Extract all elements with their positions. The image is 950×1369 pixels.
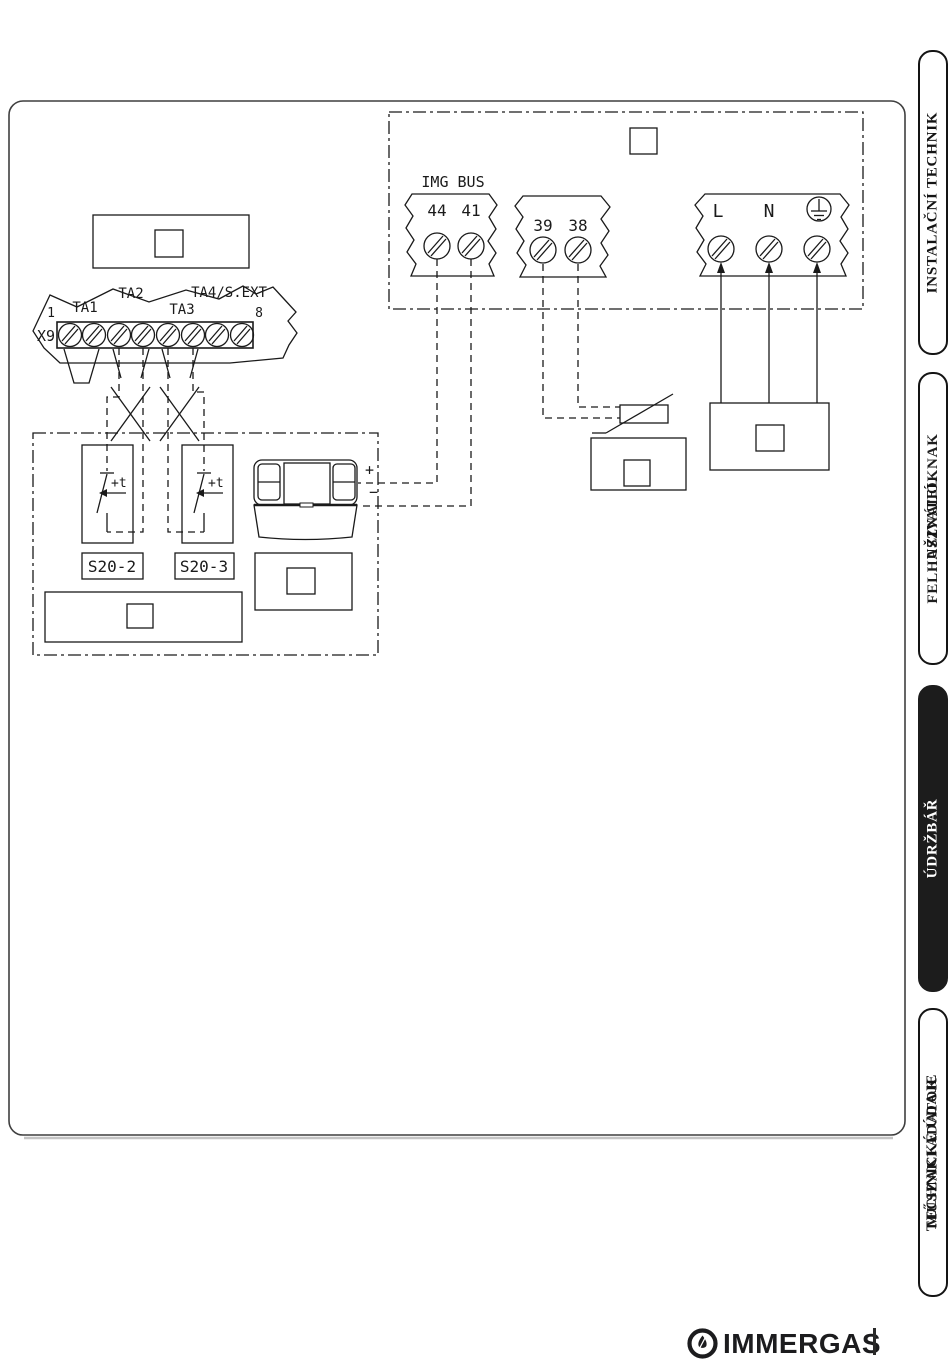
side-tab-maintenance-label: ÚDRŽBÁŘ xyxy=(925,799,941,879)
pin-8-label: 8 xyxy=(255,306,263,321)
ta1-label: TA1 xyxy=(72,300,97,316)
label-placeholder-square xyxy=(630,128,657,154)
terminal-41-screw xyxy=(458,233,484,259)
terminal-38-label: 38 xyxy=(568,216,587,235)
x9-connector: 1 8 X9 TA1 TA2 TA3 TA4/S.EXT xyxy=(33,285,297,441)
boiler-boundary-box xyxy=(389,112,863,309)
label-placeholder-square xyxy=(155,230,183,257)
thermo-contact-label: +t xyxy=(208,476,224,491)
s20-3-label: S20-3 xyxy=(180,557,228,576)
terminal-n-screw xyxy=(756,236,782,262)
external-probe-label-box xyxy=(591,438,686,490)
wires-dashed xyxy=(107,259,620,532)
label-placeholder-square xyxy=(756,425,784,451)
img-bus-terminal-block: IMG BUS 44 41 xyxy=(405,173,497,276)
wiring-diagram: IMG BUS 44 41 39 38 xyxy=(0,0,950,1369)
s20-2-label: S20-2 xyxy=(88,557,136,576)
flame-icon xyxy=(686,1327,719,1360)
power-supply-box xyxy=(710,262,829,470)
page-frame xyxy=(9,101,905,1138)
car-plus-label: + xyxy=(365,461,374,479)
earth-icon xyxy=(807,197,831,221)
side-tab-technical-data-overlay-label: MŰSZAKI ADATOK xyxy=(926,1077,941,1227)
terminal-41-label: 41 xyxy=(461,201,480,220)
external-units-boundary-box xyxy=(33,433,378,655)
ta3-label: TA3 xyxy=(169,302,194,318)
mains-terminal-block: L N xyxy=(695,194,849,276)
terminal-l-screw xyxy=(708,236,734,262)
remote-control-unit: + − xyxy=(254,460,378,540)
label-placeholder-square xyxy=(127,604,153,628)
side-tab-installer: INSTALAČNÍ TECHNIK xyxy=(918,50,948,355)
label-placeholder-square xyxy=(624,460,650,486)
manual-page: IMG BUS 44 41 39 38 xyxy=(0,0,950,1369)
ta4-sext-label: TA4/S.EXT xyxy=(191,285,267,301)
side-tab-maintenance: ÚDRŽBÁŘ xyxy=(918,685,948,992)
pin-1-label: 1 xyxy=(47,306,55,321)
brand-logo: IMMERGAS xyxy=(686,1327,881,1360)
external-units-label-box xyxy=(45,592,242,642)
footer-divider-bar xyxy=(873,1328,876,1355)
terminal-39-screw xyxy=(530,237,556,263)
side-tab-user-overlay-label: FELHASZNÁLÓKNAK xyxy=(926,433,941,603)
external-probe xyxy=(592,394,673,433)
terminal-44-screw xyxy=(424,233,450,259)
strip-screws xyxy=(59,324,254,347)
brand-name: IMMERGAS xyxy=(723,1328,881,1360)
label-placeholder-square xyxy=(287,568,315,594)
side-tab-installer-label: INSTALAČNÍ TECHNIK xyxy=(925,112,941,294)
jumper-bridge xyxy=(64,349,99,383)
terminal-38-screw xyxy=(565,237,591,263)
terminal-44-label: 44 xyxy=(427,201,446,220)
room-thermostat-2: +t xyxy=(182,445,233,543)
s20-3-label-box: S20-3 xyxy=(175,553,234,579)
car-minus-label: − xyxy=(369,483,378,501)
remote-control-label-box xyxy=(255,553,352,610)
terminal-39-38-block: 39 38 xyxy=(515,196,610,277)
terminal-39-label: 39 xyxy=(533,216,552,235)
s20-2-label-box: S20-2 xyxy=(82,553,143,579)
line-label: L xyxy=(713,201,724,222)
x9-label: X9 xyxy=(37,327,55,345)
x9-label-box xyxy=(93,215,249,268)
img-bus-label: IMG BUS xyxy=(421,173,484,191)
neutral-label: N xyxy=(764,201,775,222)
side-tab-user: UŽIVATEL FELHASZNÁLÓKNAK xyxy=(918,372,948,665)
side-tab-technical-data: TECHNICKÉ ÚDAJE MŰSZAKI ADATOK xyxy=(918,1008,948,1297)
terminal-earth-screw xyxy=(804,236,830,262)
thermo-contact-label: +t xyxy=(111,476,127,491)
ta2-label: TA2 xyxy=(118,286,143,302)
